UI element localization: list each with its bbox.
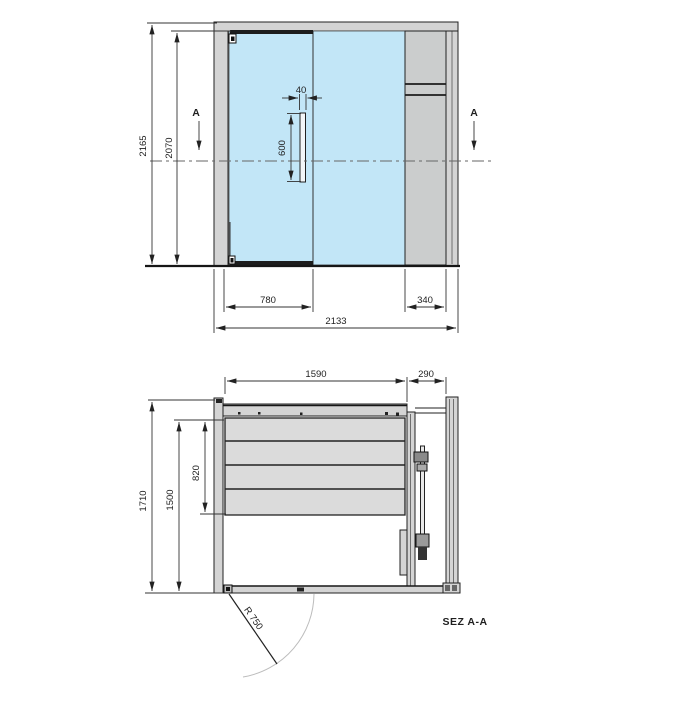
plan-structure — [214, 397, 460, 593]
section-title: SEZ A-A — [442, 616, 487, 628]
dim-label: 2070 — [164, 137, 175, 158]
heater-bracket-upper — [414, 452, 428, 462]
plan-section-view: R 750 1590 290 1710 1500 — [138, 369, 488, 677]
door-swing-radius-label: R 750 — [241, 605, 265, 632]
front-glass-wall — [223, 586, 460, 593]
dim-interior-width: 1590 — [225, 369, 407, 402]
bench-unit — [225, 418, 405, 515]
back-wall-fixing — [300, 413, 303, 416]
dim-label: 1710 — [138, 490, 149, 511]
door-top-patch-rail — [230, 30, 313, 34]
dim-side-panel-width: 340 — [405, 269, 446, 312]
top-frame-rail — [214, 22, 458, 31]
glass-panels — [229, 31, 405, 265]
back-wall-fixing — [238, 412, 241, 415]
corner-fitting-detail — [445, 585, 450, 591]
corner-fitting-detail — [452, 585, 457, 591]
drawing-page: A A 2165 2070 40 — [0, 0, 700, 701]
bottom-pivot-hinge-pin — [231, 258, 234, 263]
door-swing: R 750 — [229, 594, 314, 677]
right-outer-post — [446, 397, 458, 593]
dim-label: 40 — [296, 85, 307, 96]
door-handle-bar — [300, 113, 306, 182]
partition-post — [407, 412, 415, 590]
heater-side-panel — [400, 530, 407, 575]
left-wall — [214, 398, 223, 593]
technical-drawing: A A 2165 2070 40 — [0, 0, 700, 701]
section-marker-right: A — [470, 107, 478, 119]
elevation-structure — [145, 22, 460, 266]
dim-label: 2133 — [325, 316, 346, 327]
dim-label: 290 — [418, 369, 434, 380]
back-wall-fixing — [396, 413, 399, 416]
dim-door-width: 780 — [224, 269, 313, 312]
dim-label: 340 — [417, 295, 433, 306]
door-open-position-line — [229, 594, 277, 664]
section-marker-left: A — [192, 107, 200, 119]
dim-total-depth: 1710 — [138, 400, 223, 593]
back-wall-fixing — [258, 412, 261, 415]
front-wall-patch-fitting — [297, 588, 304, 592]
dim-label: 600 — [277, 140, 288, 156]
top-pivot-hinge-pin — [231, 37, 235, 42]
dim-label: 780 — [260, 295, 276, 306]
side-panel — [405, 31, 446, 265]
dim-label: 1590 — [305, 369, 326, 380]
dim-heater-zone-width: 290 — [409, 369, 446, 394]
dim-label: 1500 — [165, 489, 176, 510]
door-bottom-patch-rail — [230, 261, 313, 265]
door-pivot-pin — [226, 587, 230, 591]
elevation-view: A A 2165 2070 40 — [138, 22, 492, 333]
dim-total-height: 2165 — [138, 23, 217, 264]
door-swing-arc — [243, 594, 314, 677]
left-wall-corner-fitting — [216, 399, 222, 403]
heater-bracket-lower — [416, 534, 429, 547]
heater-coupling — [417, 464, 427, 471]
dim-label: 820 — [191, 465, 202, 481]
back-wall-fixing — [385, 412, 388, 415]
left-frame-post — [214, 22, 228, 266]
heater-block — [418, 547, 427, 560]
dim-label: 2165 — [138, 135, 149, 156]
